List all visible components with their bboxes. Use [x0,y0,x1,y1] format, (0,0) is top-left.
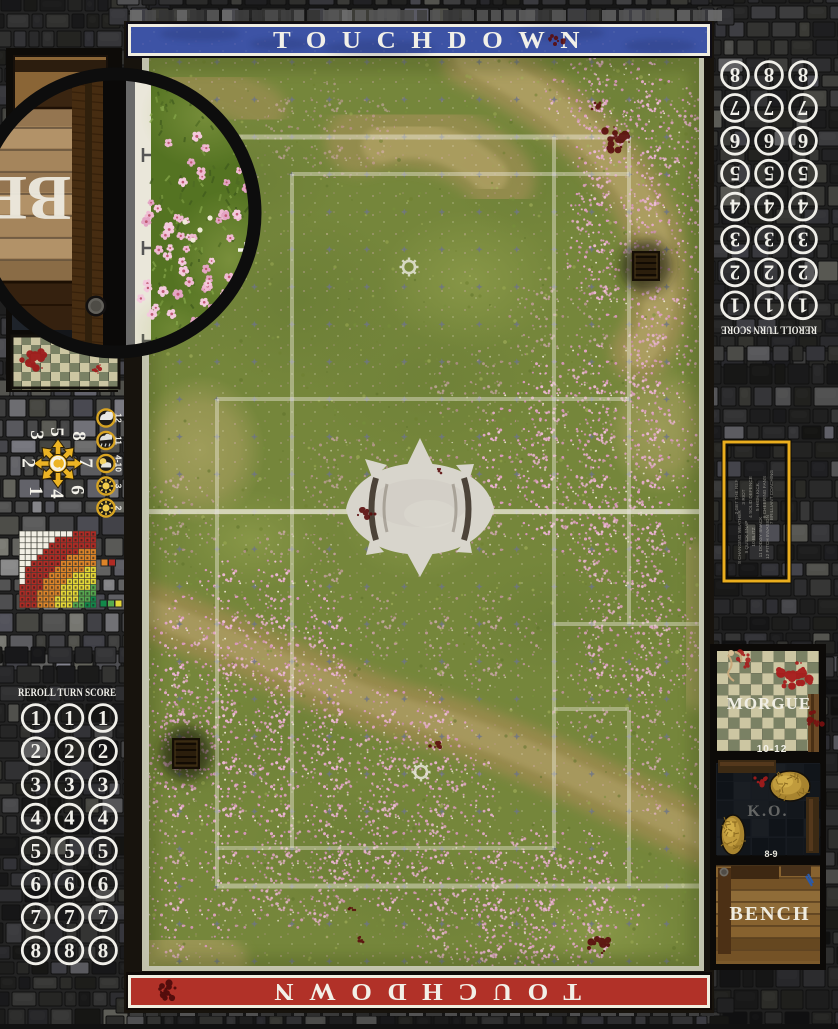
svg-text:8-9: 8-9 [764,849,777,859]
svg-text:6: 6 [67,485,88,495]
svg-text:REROLL TURN SCORE: REROLL TURN SCORE [18,687,116,699]
svg-text:9 QUICK SNAP: 9 QUICK SNAP [744,521,749,554]
svg-text:MORGUE: MORGUE [727,694,811,713]
svg-text:3: 3 [798,228,809,252]
svg-text:7: 7 [798,96,809,120]
svg-text:1: 1 [764,293,775,317]
svg-text:REROLL TURN SCORE: REROLL TURN SCORE [721,324,817,336]
svg-text:4 SOLID DEFENCE: 4 SOLID DEFENCE [748,476,753,518]
svg-text:5 HIGH KICK: 5 HIGH KICK [755,482,760,511]
svg-text:3: 3 [730,228,741,252]
svg-text:12: 12 [114,413,124,423]
svg-text:10 BLITZ: 10 BLITZ [751,527,756,546]
svg-text:2: 2 [98,739,109,763]
svg-text:8: 8 [98,938,109,962]
svg-text:3: 3 [114,484,124,489]
svg-text:7: 7 [30,905,41,929]
svg-text:BENCH: BENCH [729,903,810,925]
svg-text:2 GET THE REF: 2 GET THE REF [734,480,739,515]
svg-text:1: 1 [730,293,741,317]
svg-text:2: 2 [30,739,41,763]
svg-text:12 PITCH INVASION: 12 PITCH INVASION [765,515,770,559]
svg-text:6: 6 [798,129,809,153]
svg-text:8: 8 [798,63,809,87]
svg-text:2: 2 [114,506,124,511]
svg-text:1: 1 [798,293,809,317]
svg-text:7: 7 [98,905,109,929]
svg-text:4: 4 [729,195,740,219]
svg-text:TOUCHDOWN: TOUCHDOWN [273,28,595,54]
svg-text:4: 4 [30,806,41,830]
svg-text:8: 8 [30,938,41,962]
svg-text:5: 5 [98,839,109,863]
svg-text:1: 1 [25,486,46,496]
svg-text:8: 8 [68,431,89,441]
svg-text:2: 2 [730,260,741,284]
svg-text:3: 3 [26,430,47,440]
svg-text:7: 7 [764,96,775,120]
svg-text:5: 5 [730,162,741,186]
svg-text:5: 5 [46,427,67,437]
svg-text:4: 4 [46,489,67,499]
svg-text:2: 2 [798,260,809,284]
svg-text:4-10: 4-10 [114,455,124,472]
svg-text:6: 6 [64,872,75,896]
svg-text:5: 5 [798,162,809,186]
svg-text:4: 4 [763,195,774,219]
svg-text:3: 3 [764,228,775,252]
svg-text:2: 2 [18,458,39,468]
svg-text:5: 5 [764,162,775,186]
svg-text:3 RIOT: 3 RIOT [741,489,746,504]
svg-text:3: 3 [30,772,41,796]
svg-text:3: 3 [64,772,75,796]
svg-text:7: 7 [75,458,96,468]
svg-text:TOUCHDOWN: TOUCHDOWN [259,978,581,1004]
svg-text:6: 6 [30,872,41,896]
svg-text:11 DODGY SNACK: 11 DODGY SNACK [758,516,763,558]
svg-text:6 CHEERING FANS: 6 CHEERING FANS [762,476,767,518]
svg-text:8: 8 [64,938,75,962]
svg-text:3: 3 [98,772,109,796]
svg-text:4: 4 [64,806,75,830]
svg-text:6: 6 [98,872,109,896]
svg-text:4: 4 [797,195,808,219]
svg-text:8: 8 [730,63,741,87]
svg-text:2: 2 [764,260,775,284]
svg-text:5: 5 [64,839,75,863]
svg-text:8 CHANGING WEATHER: 8 CHANGING WEATHER [737,510,742,564]
svg-text:2: 2 [64,739,75,763]
svg-text:1: 1 [64,706,75,730]
svg-text:11: 11 [114,436,124,445]
svg-text:BE: BE [0,163,71,234]
svg-text:7: 7 [64,905,75,929]
svg-text:1: 1 [30,706,41,730]
svg-text:6: 6 [764,129,775,153]
svg-text:8: 8 [764,63,775,87]
svg-text:10-12: 10-12 [757,744,788,755]
svg-text:1: 1 [98,706,109,730]
svg-text:5: 5 [30,839,41,863]
svg-text:7: 7 [730,96,741,120]
svg-text:K.O.: K.O. [748,803,789,820]
svg-text:6: 6 [730,129,741,153]
svg-text:4: 4 [98,806,109,830]
